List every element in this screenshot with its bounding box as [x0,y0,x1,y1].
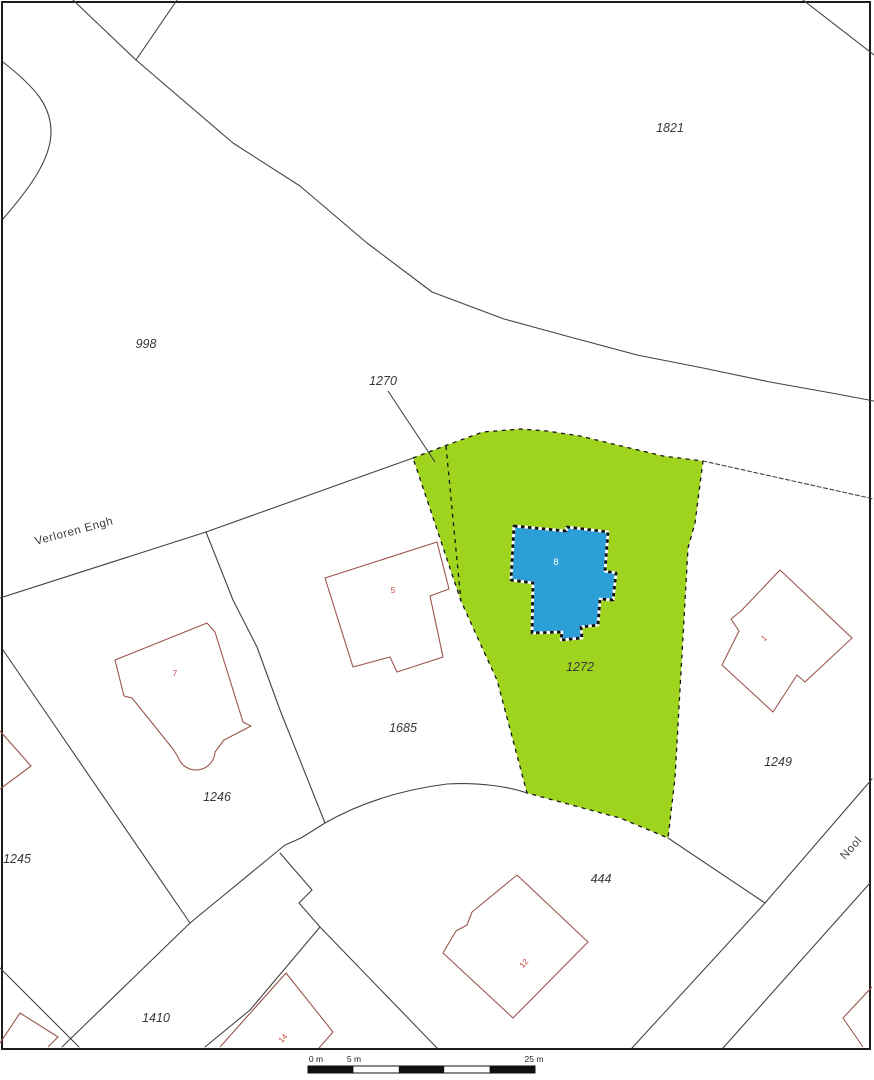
parcel-label-1685: 1685 [389,721,417,735]
parcel-label-1821: 1821 [656,121,684,135]
scale-bar-segment-2 [399,1066,444,1073]
parcel-label-1249: 1249 [764,755,792,769]
parcel-label-1410: 1410 [142,1011,170,1025]
scale-bar-segment-0 [308,1066,353,1073]
cadastral-map-canvas[interactable]: 8751121418219981270127216851246124512494… [0,0,874,1080]
parcel-label-998: 998 [136,337,157,351]
building-number-8: 8 [553,557,558,568]
scale-label-0m: 0 m [309,1054,323,1064]
scale-label-5m: 5 m [347,1054,361,1064]
scale-bar-segment-4 [490,1066,535,1073]
parcel-label-1246: 1246 [203,790,231,804]
parcel-label-444: 444 [591,872,612,886]
house-7-number: 7 [173,669,178,678]
cadastral-map-viewport[interactable]: 8751121418219981270127216851246124512494… [0,0,874,1080]
parcel-label-1272: 1272 [566,660,594,674]
scale-label-25m: 25 m [525,1054,544,1064]
house-5-number: 5 [391,586,396,595]
parcel-label-1245: 1245 [3,852,31,866]
parcel-label-1270: 1270 [369,374,397,388]
